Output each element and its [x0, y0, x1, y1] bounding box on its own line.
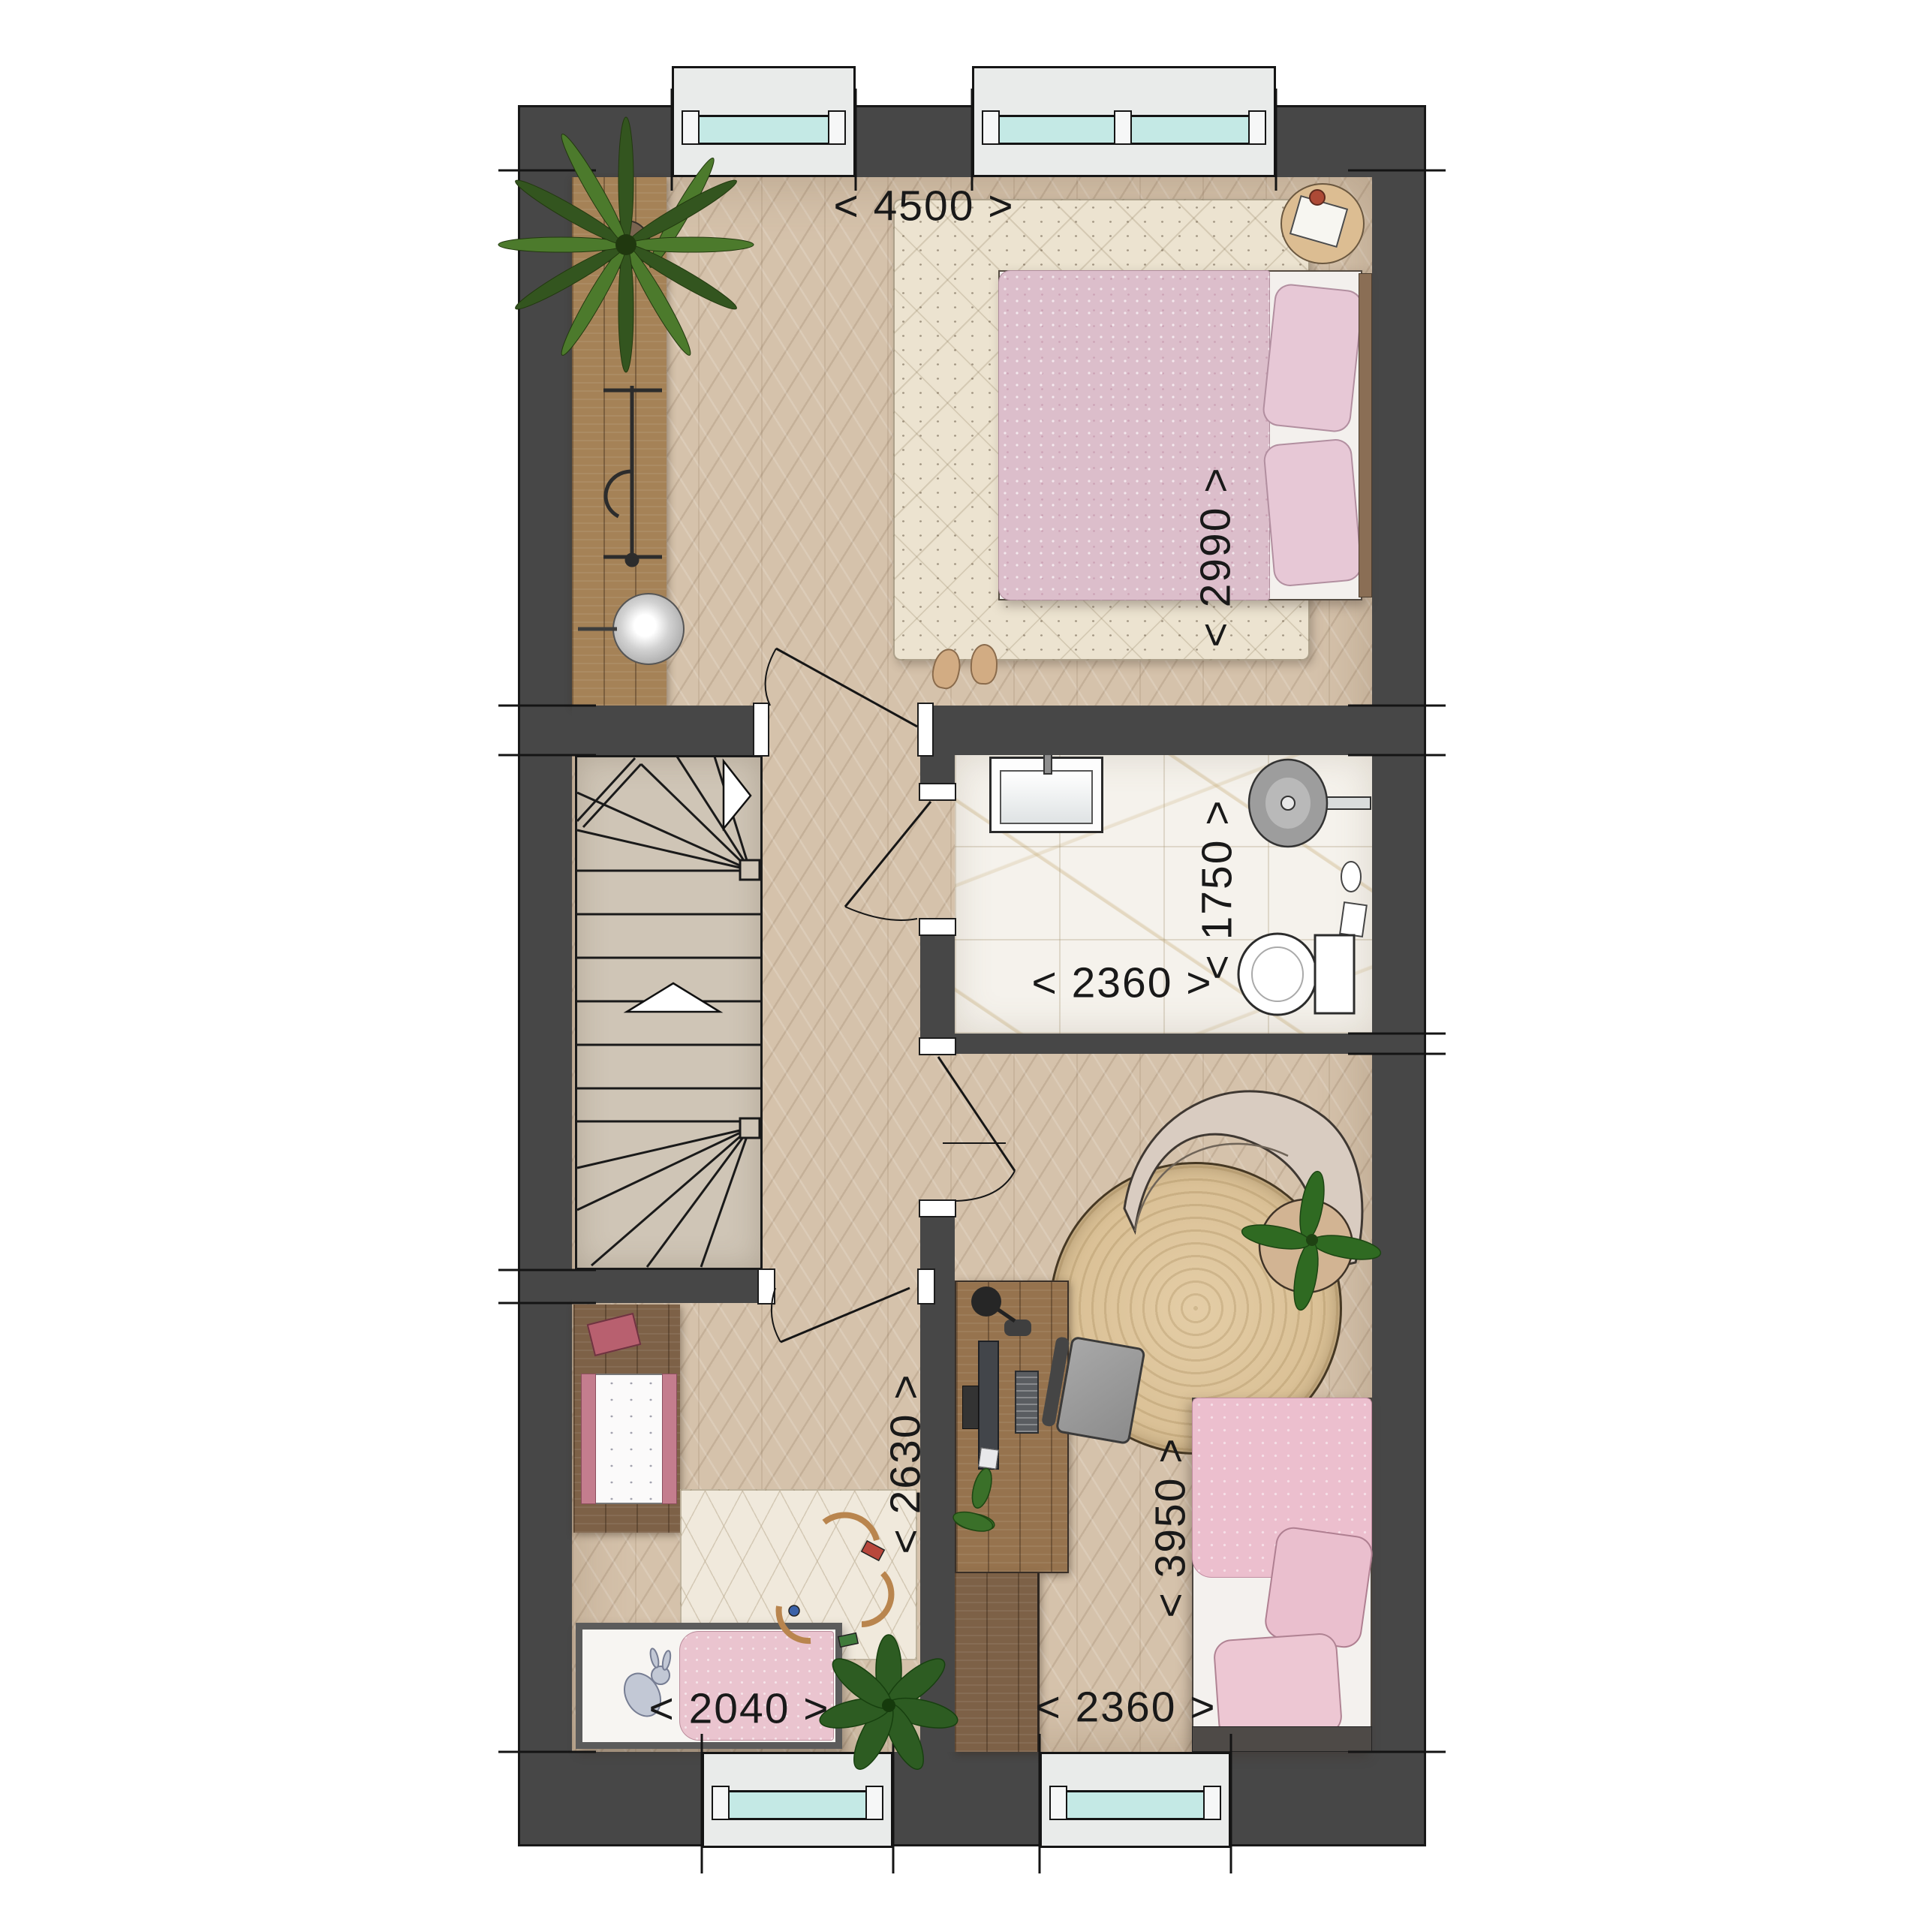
window-mullion: [982, 110, 1000, 145]
monitor-stand: [962, 1386, 979, 1429]
window-bottom-left: [702, 1752, 893, 1848]
door-jamb: [753, 703, 769, 757]
window-mullion: [1203, 1786, 1221, 1820]
master-pillow: [1261, 282, 1364, 433]
cup: [1309, 189, 1326, 206]
office-chair: [1039, 1329, 1149, 1452]
door-jamb: [919, 783, 956, 801]
notepad: [978, 1447, 998, 1469]
wall-childroom-top: [572, 1270, 774, 1303]
slipper: [970, 643, 998, 685]
dim-bath-width: < 2360 >: [1031, 962, 1212, 1005]
dim-bedroom3-width: < 2360 >: [1035, 1687, 1216, 1729]
window-glass: [686, 115, 841, 145]
window-mullion: [712, 1786, 730, 1820]
floor-lamp: [612, 593, 685, 665]
bedroom3-pillow: [1212, 1632, 1343, 1741]
dim-hall-depth: < 2630 >: [885, 1373, 928, 1554]
dim-master-width: < 4500 >: [833, 185, 1014, 228]
window-mullion: [682, 110, 700, 145]
bedroom3-footboard: [1192, 1726, 1372, 1752]
master-pillow: [1262, 438, 1363, 588]
window-mullion: [1049, 1786, 1067, 1820]
floor-plan: < 4500 > < 2990 > < 1750 > < 2360 > < 26…: [0, 0, 1932, 1932]
changing-mat-rail: [662, 1374, 677, 1504]
wall-master-right: [917, 706, 1372, 755]
dim-bath-depth: < 1750 >: [1196, 799, 1239, 980]
window-top-left: [672, 66, 856, 177]
dim-master-depth: < 2990 >: [1195, 466, 1238, 647]
door-jamb: [919, 918, 956, 936]
window-mullion: [1114, 110, 1132, 145]
door-jamb: [917, 1268, 935, 1305]
door-jamb: [917, 703, 934, 757]
chair-seat: [1055, 1336, 1146, 1445]
window-mullion: [828, 110, 846, 145]
window-bottom-right: [1040, 1752, 1231, 1848]
washbasin-bowl: [1000, 770, 1093, 824]
door-jamb: [757, 1268, 775, 1305]
dim-bedroom3-depth: < 3950 >: [1150, 1437, 1193, 1618]
bedroom3-wardrobe: [955, 1573, 1040, 1752]
dim-child-width: < 2040 >: [649, 1688, 829, 1731]
wall-bathroom-bottom: [955, 1034, 1372, 1054]
window-glass: [1054, 1790, 1217, 1820]
door-jamb: [919, 1037, 956, 1055]
wall-master-left: [572, 706, 769, 755]
wall-corridor-mid: [920, 919, 955, 1054]
master-headboard: [1359, 273, 1372, 597]
window-mullion: [865, 1786, 883, 1820]
mouse-pad: [1004, 1320, 1031, 1336]
changing-mat-rail: [581, 1374, 596, 1504]
bedroom3-pillow: [1262, 1525, 1375, 1651]
staircase-area: [575, 755, 763, 1270]
keyboard: [1015, 1371, 1039, 1434]
window-glass: [716, 1790, 879, 1820]
window-mullion: [1248, 110, 1266, 145]
window-top-right: [972, 66, 1276, 177]
door-jamb: [919, 1199, 956, 1217]
